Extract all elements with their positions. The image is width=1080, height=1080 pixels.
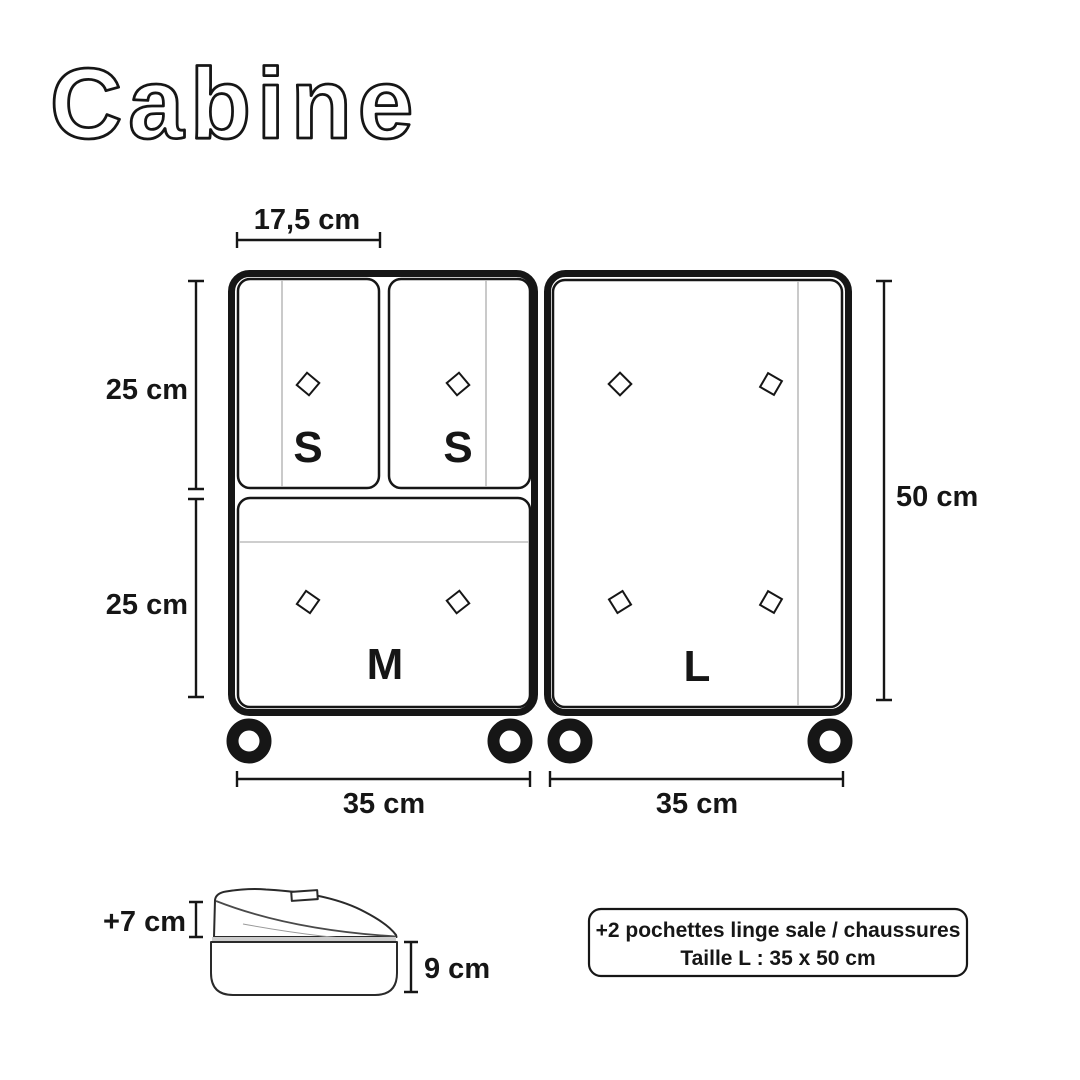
page-title: Cabine (50, 48, 419, 160)
wheel-icon (233, 725, 266, 758)
diagram-canvas: Cabine 17,5 cm 25 cm 25 cm 50 cm (0, 0, 1080, 1080)
pouch-base (211, 942, 397, 995)
dim-right-height: 50 cm (876, 281, 978, 700)
dim-right-height-label: 50 cm (896, 481, 978, 513)
dim-pouch-base-line (404, 942, 418, 992)
note-line2: Taille L : 35 x 50 cm (680, 947, 875, 970)
dim-bottom-right-line (550, 771, 843, 787)
pouch-tab (291, 890, 318, 901)
dim-upper-left-label: 25 cm (106, 374, 188, 406)
cube-l-label: L (684, 642, 711, 691)
dim-right-height-line (876, 281, 892, 700)
dim-upper-left-height: 25 cm (106, 281, 204, 489)
cabine-infographic: Cabine 17,5 cm 25 cm 25 cm 50 cm (0, 0, 1080, 1080)
dim-bottom-left-label: 35 cm (343, 788, 425, 820)
cube-s1-label: S (293, 423, 322, 472)
note: +2 pochettes linge sale / chaussures Tai… (589, 909, 967, 976)
dim-pouch-expansion-label: +7 cm (103, 906, 186, 938)
dim-bottom-left-width: 35 cm (237, 771, 530, 820)
dim-pouch-base: 9 cm (404, 942, 490, 992)
dim-lower-left-line (188, 499, 204, 697)
dim-bottom-right-width: 35 cm (550, 771, 843, 820)
dim-lower-left-label: 25 cm (106, 589, 188, 621)
dim-upper-left-line (188, 281, 204, 489)
dim-top-width-label: 17,5 cm (254, 204, 360, 236)
wheel-icon (554, 725, 587, 758)
dim-lower-left-height: 25 cm (106, 499, 204, 697)
dim-top-width: 17,5 cm (237, 204, 380, 248)
note-line1: +2 pochettes linge sale / chaussures (596, 919, 961, 942)
dim-bottom-left-line (237, 771, 530, 787)
wheel-icon (814, 725, 847, 758)
dim-pouch-expansion-line (189, 902, 203, 937)
dim-pouch-expansion: +7 cm (103, 902, 203, 938)
wheel-icon (494, 725, 527, 758)
pouch-side-view (211, 889, 397, 995)
cube-s2-label: S (443, 423, 472, 472)
dim-pouch-base-label: 9 cm (424, 953, 490, 985)
dim-bottom-right-label: 35 cm (656, 788, 738, 820)
cube-m-label: M (367, 640, 404, 689)
